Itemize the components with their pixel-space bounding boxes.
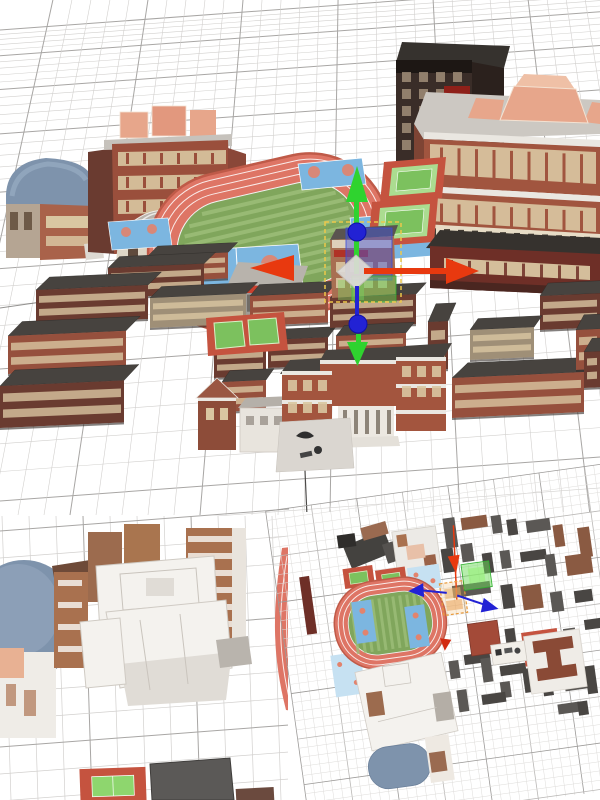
gizmo-z-shaft[interactable] — [355, 286, 359, 318]
building-roof[interactable] — [565, 553, 594, 576]
roof-slab-small[interactable] — [236, 787, 275, 800]
gizmo-blue-node-upper[interactable] — [348, 223, 366, 241]
building-roof[interactable] — [574, 589, 593, 603]
tennis-court[interactable] — [380, 157, 446, 203]
campus-building[interactable] — [36, 272, 161, 326]
campus-building[interactable] — [0, 364, 139, 430]
school-topdown[interactable] — [524, 629, 588, 694]
gizmo-x-shaft[interactable] — [364, 268, 448, 274]
detail-viewport[interactable] — [0, 509, 308, 800]
roof-slab-closeup[interactable] — [150, 758, 234, 800]
plaza-slab-topdown[interactable] — [490, 641, 526, 666]
school-plaza — [276, 418, 354, 472]
tennis-court[interactable] — [206, 312, 288, 356]
building-roof[interactable] — [521, 584, 544, 611]
basketball-court[interactable] — [108, 218, 172, 250]
building-roof[interactable] — [577, 700, 589, 715]
editor-stage — [0, 0, 600, 800]
building-roof[interactable] — [460, 543, 474, 562]
gizmo-blue-node-lower[interactable] — [349, 315, 367, 333]
scene-canvas[interactable] — [0, 0, 600, 800]
tennis-court-closeup[interactable] — [79, 767, 146, 800]
campus-building[interactable] — [470, 316, 542, 362]
